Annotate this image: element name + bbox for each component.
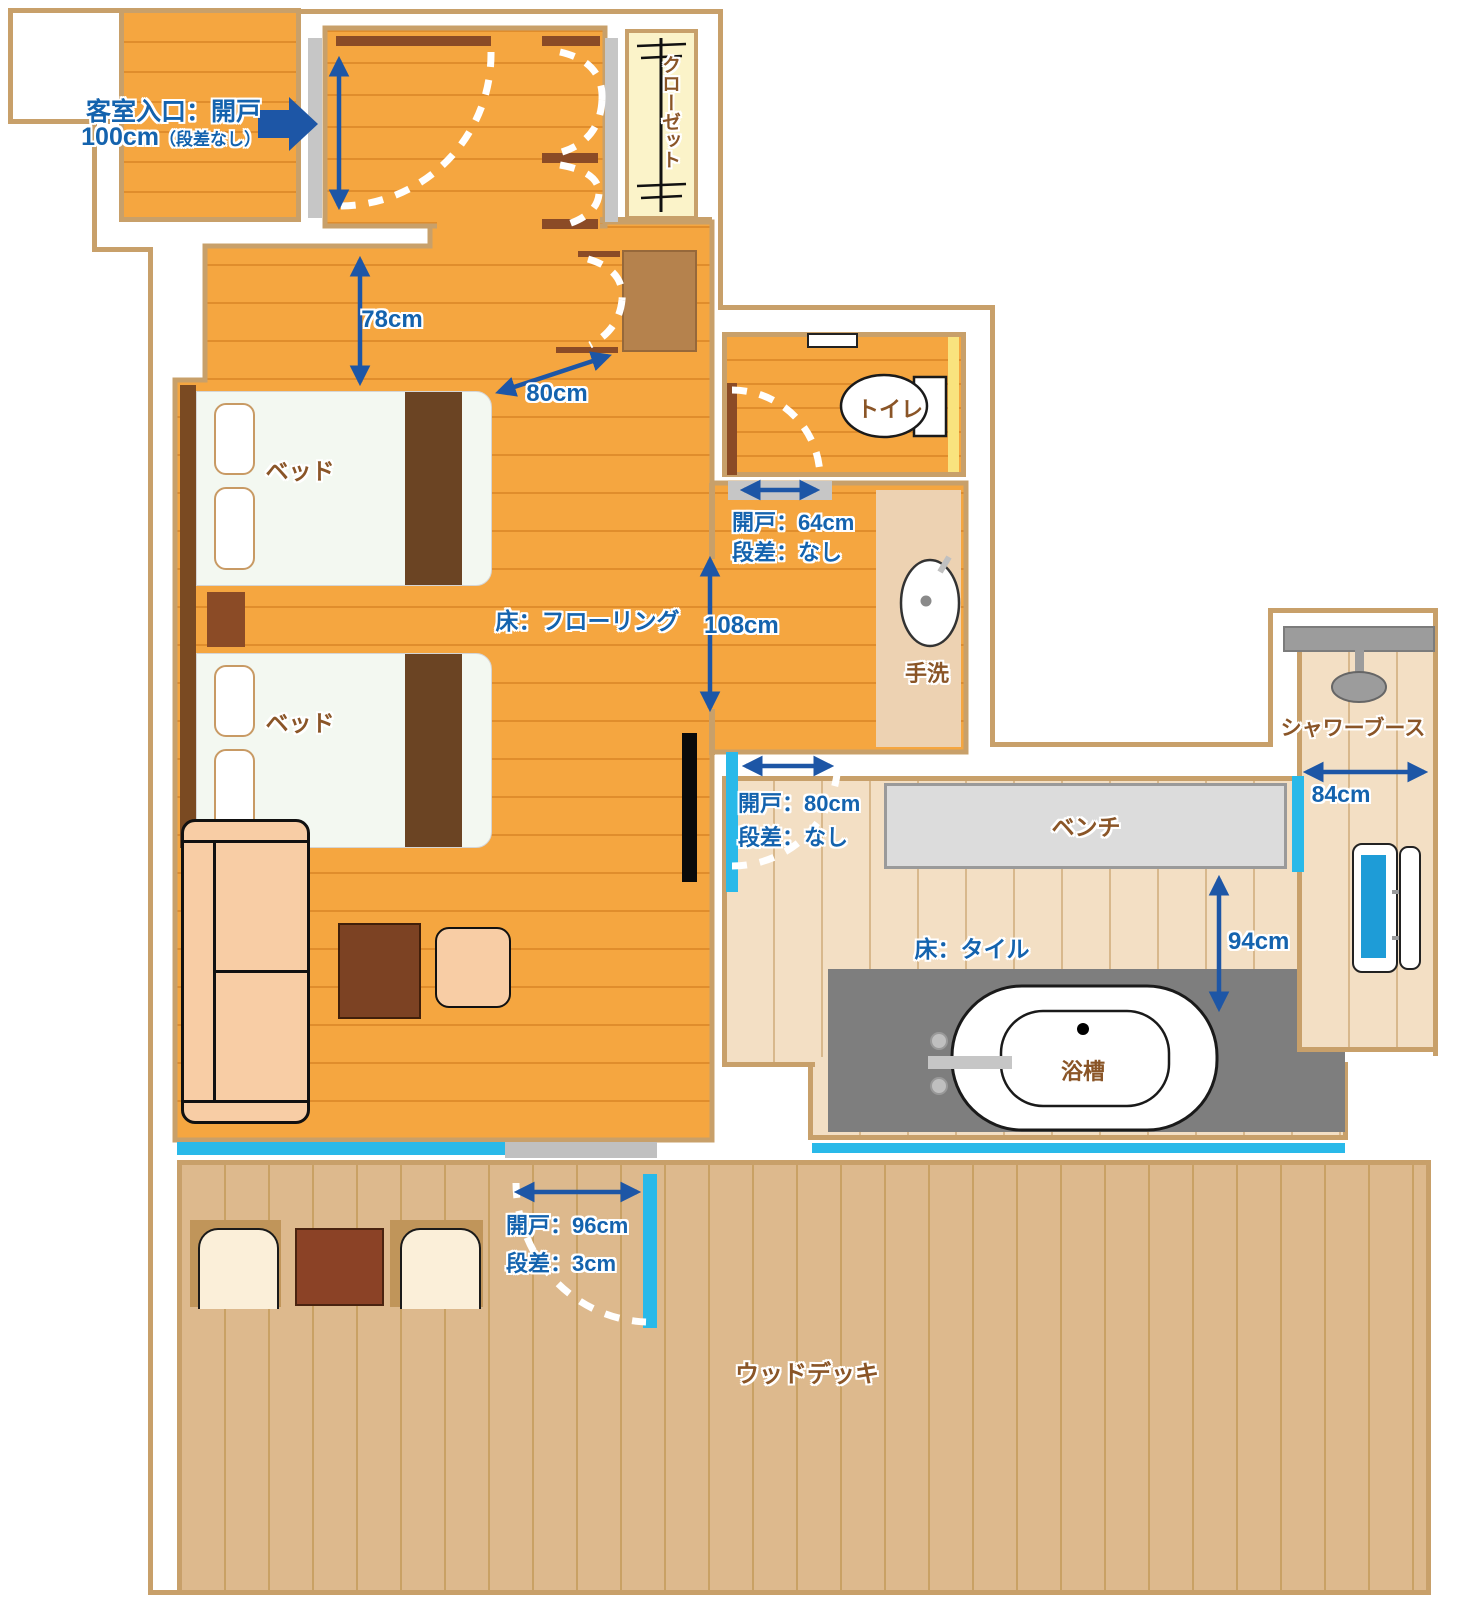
measure-94cm: 94cm <box>1228 928 1289 956</box>
toilet-step-label: 段差：なし <box>732 535 842 567</box>
bath-door-label: 開戸：80cm <box>738 786 860 818</box>
measure-108cm: 108cm <box>704 612 779 640</box>
washbasin-icon <box>901 557 959 646</box>
deck-label: ウッドデッキ <box>732 1354 882 1389</box>
floor-plan: 客室入口：開戸 100cm（段差なし） クローゼット 78cm 80cm ベッド… <box>0 0 1459 1600</box>
washbasin-label: 手洗 <box>895 656 959 688</box>
shower-head-icon <box>1332 648 1386 702</box>
toilet-door-label: 開戸：64cm <box>732 505 854 537</box>
bed-1-label: ベッド <box>250 452 350 486</box>
entry-value-note: （段差なし） <box>159 130 261 149</box>
bed-2-label: ベッド <box>250 704 350 738</box>
toilet-label: トイレ <box>848 392 932 424</box>
floor-main-label: 床：フローリング <box>490 602 685 636</box>
measure-84cm: 84cm <box>1296 781 1386 808</box>
entry-arrow-icon <box>258 97 318 151</box>
bench-label: ベンチ <box>1032 808 1140 842</box>
deck-door-label: 開戸：96cm <box>506 1208 628 1240</box>
measure-80cm: 80cm <box>512 380 602 408</box>
overlay <box>0 0 1459 1600</box>
bath-step-label: 段差：なし <box>738 820 848 852</box>
measure-78cm: 78cm <box>352 306 432 334</box>
entry-value: 100cm（段差なし） <box>20 123 261 152</box>
bathtub-label: 浴槽 <box>1033 1054 1133 1086</box>
floor-bath-label: 床：タイル <box>908 930 1036 964</box>
deck-step-label: 段差：3cm <box>506 1246 616 1278</box>
shower-label: シャワーブース <box>1264 712 1442 742</box>
closet-label: クローゼット <box>653 55 683 215</box>
entry-value-number: 100cm <box>81 123 159 151</box>
door-swing-arcs <box>341 52 838 1322</box>
